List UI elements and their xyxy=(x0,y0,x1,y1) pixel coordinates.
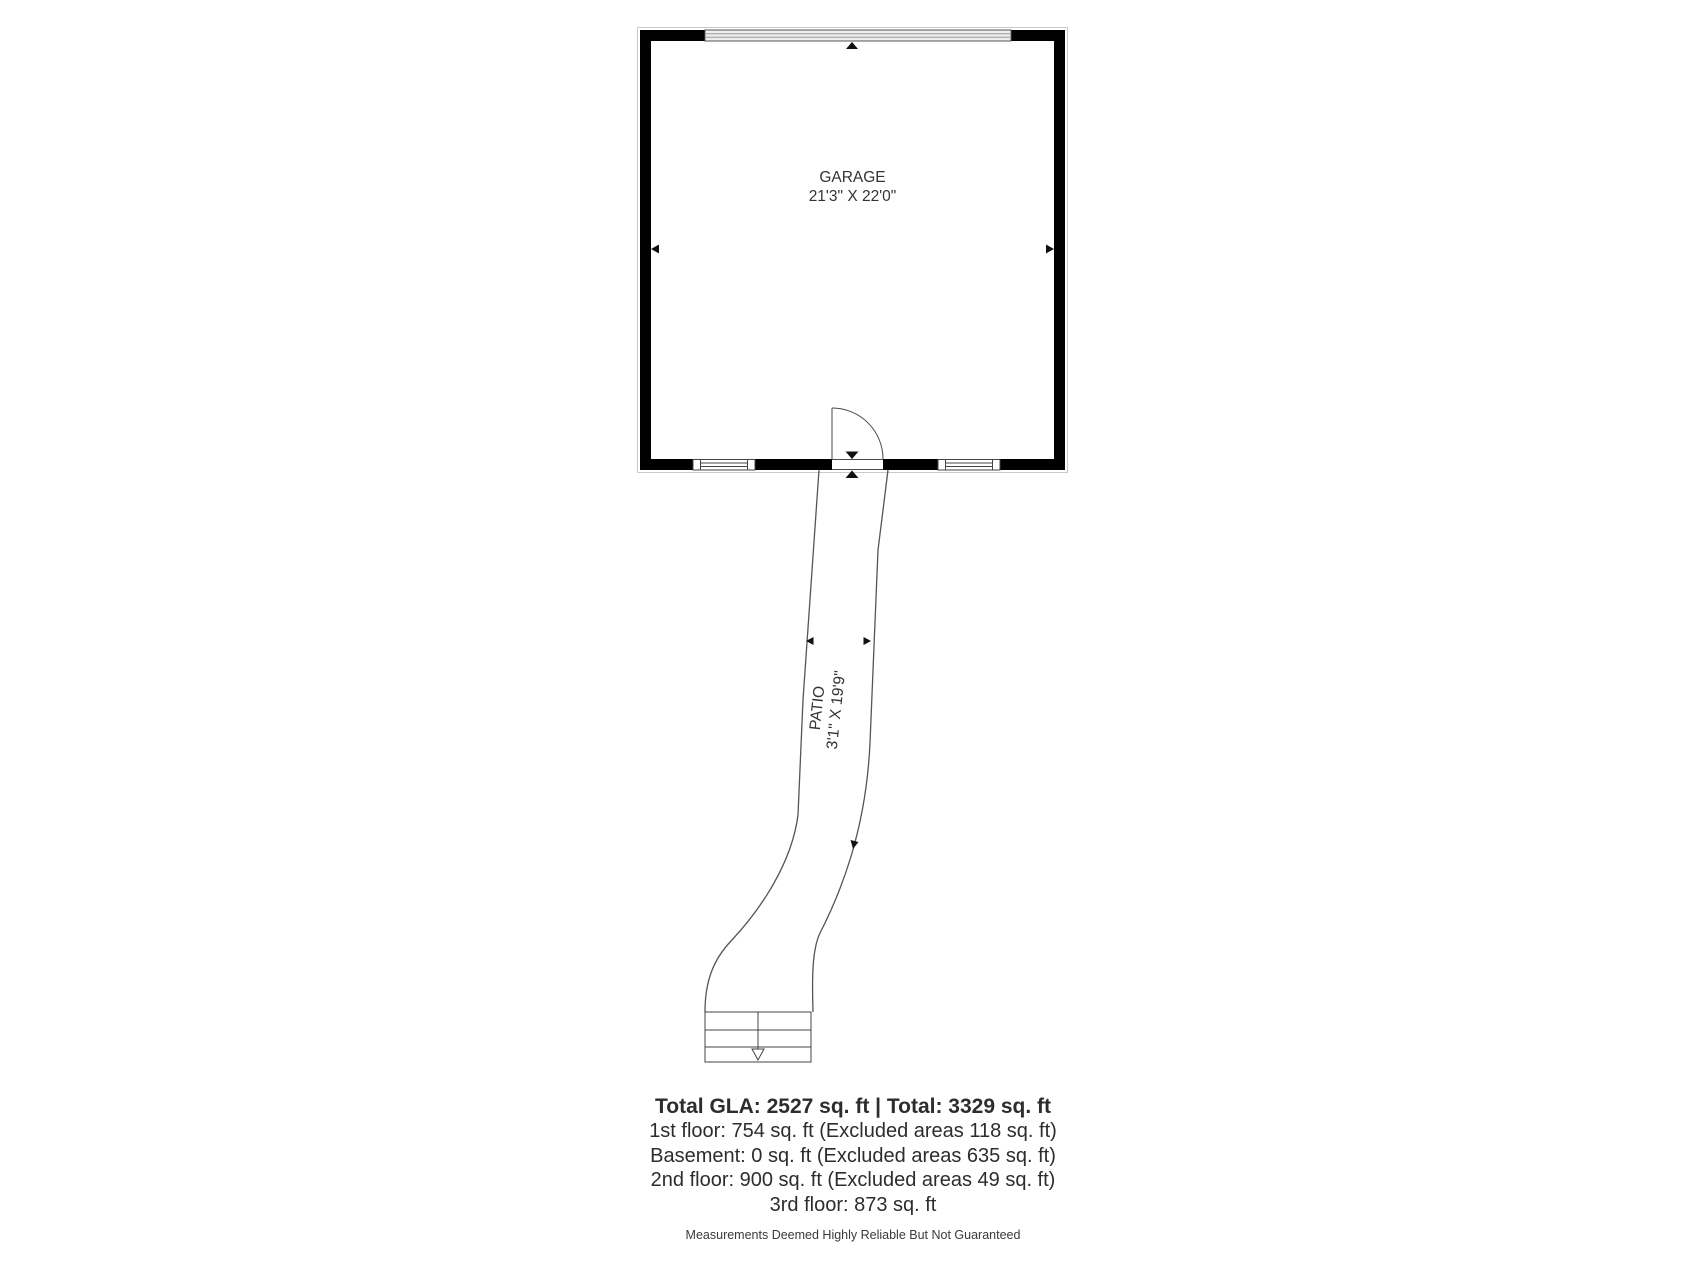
patio-length-arrow-icon xyxy=(851,840,859,849)
floor-line-basement: Basement: 0 sq. ft (Excluded areas 635 s… xyxy=(0,1144,1706,1169)
floor-line-1: 1st floor: 754 sq. ft (Excluded areas 11… xyxy=(0,1119,1706,1144)
patio-edge-left xyxy=(705,470,819,1012)
garage-dimensions: 21'3" X 22'0" xyxy=(809,188,897,205)
window-right xyxy=(938,460,1000,471)
floor-line-3: 3rd floor: 873 sq. ft xyxy=(0,1193,1706,1218)
right-wall-arrow-icon xyxy=(1046,245,1054,254)
floorplan-canvas: GARAGE 21'3" X 22'0" PATIO 3'1" X 19'9" xyxy=(0,0,1706,1280)
patio-width-arrow-right-icon xyxy=(864,637,872,645)
window-left xyxy=(693,460,755,471)
disclaimer-text: Measurements Deemed Highly Reliable But … xyxy=(0,1228,1706,1242)
left-wall-arrow-icon xyxy=(651,245,659,254)
garage-walls xyxy=(640,30,1065,470)
garage-outer-outline xyxy=(638,28,1068,473)
garage-label: GARAGE xyxy=(819,169,885,186)
patio-label: PATIO xyxy=(807,685,829,731)
patio-dimensions: 3'1" X 19'9" xyxy=(824,670,849,750)
patio-label-group: PATIO 3'1" X 19'9" xyxy=(805,668,849,750)
floor-line-2: 2nd floor: 900 sq. ft (Excluded areas 49… xyxy=(0,1168,1706,1193)
garage-door xyxy=(705,30,1011,41)
area-summary: Total GLA: 2527 sq. ft | Total: 3329 sq.… xyxy=(0,1094,1706,1242)
door-inward-arrow-icon xyxy=(846,452,859,460)
door-outward-arrow-icon xyxy=(846,471,859,479)
patio-outline xyxy=(705,470,888,1012)
total-gla-line: Total GLA: 2527 sq. ft | Total: 3329 sq.… xyxy=(0,1094,1706,1119)
stairs xyxy=(705,1012,811,1062)
entry-door xyxy=(832,408,883,470)
floorplan-page: GARAGE 21'3" X 22'0" PATIO 3'1" X 19'9" … xyxy=(0,0,1706,1280)
garage-door-arrow-icon xyxy=(846,42,858,49)
